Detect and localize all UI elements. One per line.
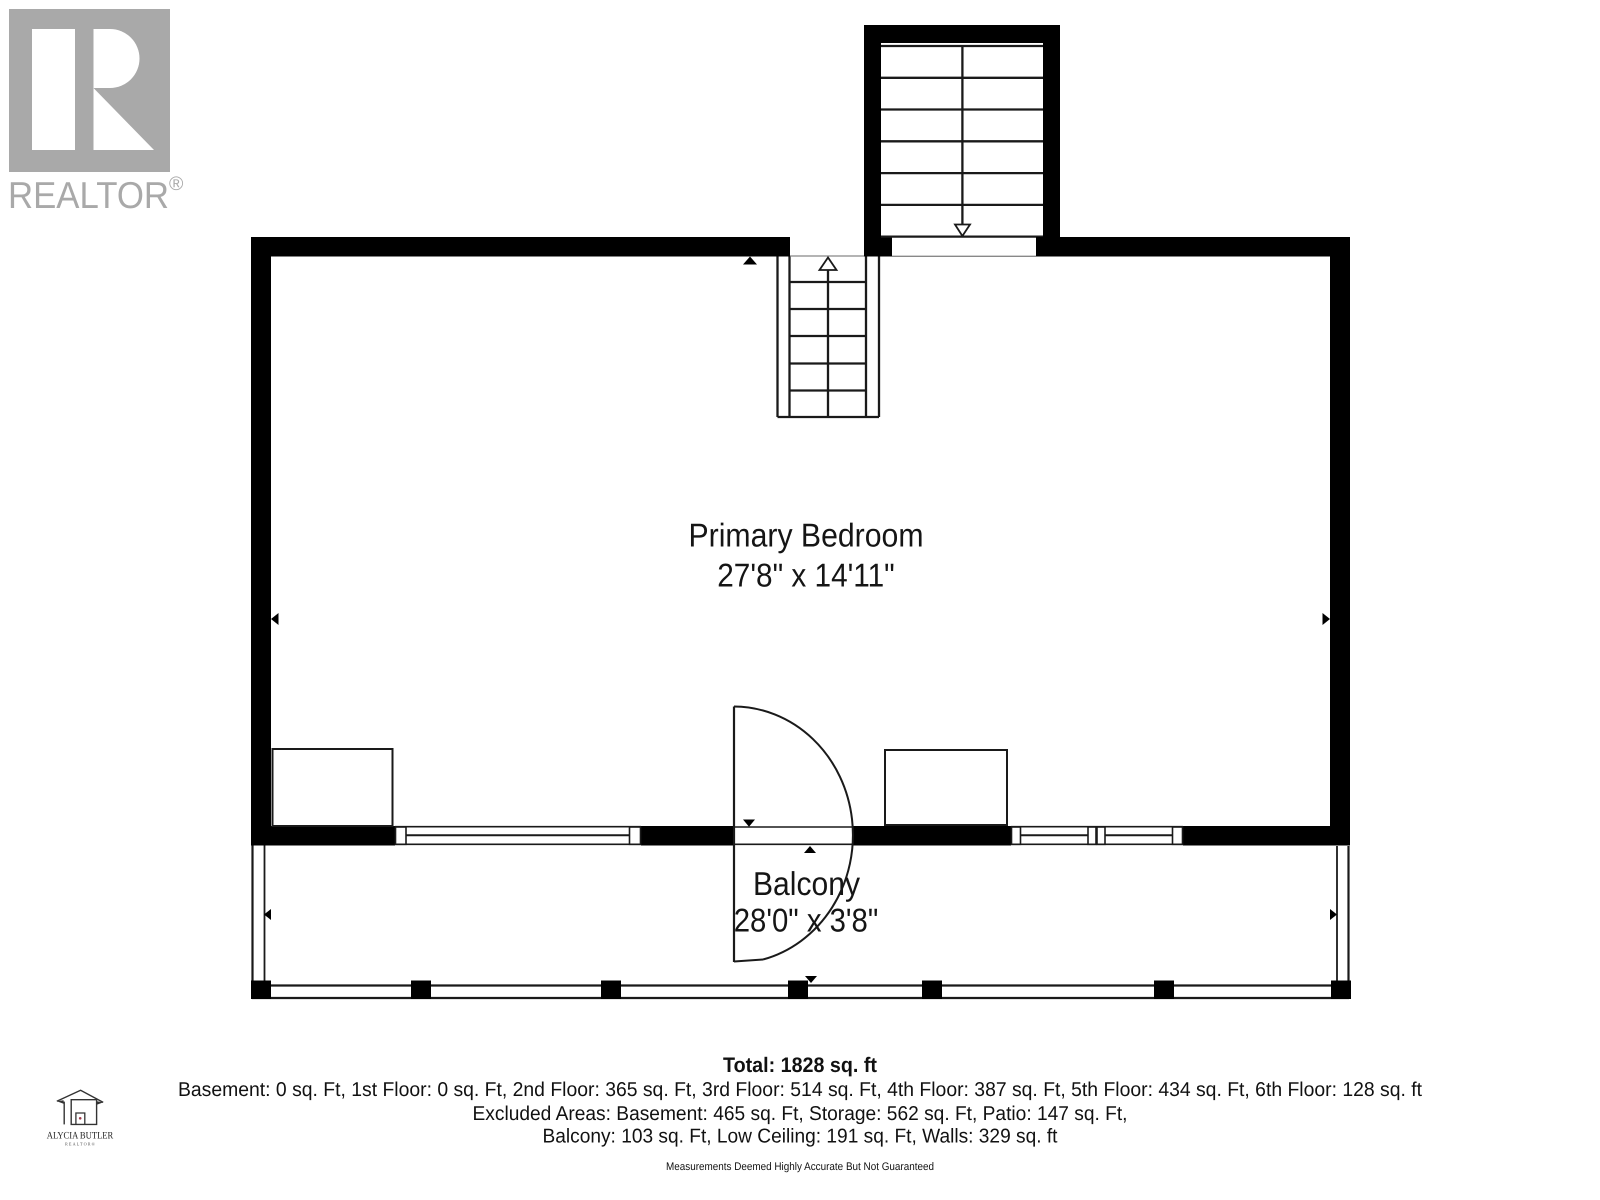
svg-text:®: ® <box>169 173 184 195</box>
svg-text:REALTOR®: REALTOR® <box>65 1142 96 1147</box>
svg-text:27'8" x 14'11": 27'8" x 14'11" <box>717 556 895 593</box>
svg-text:Total: 1828 sq. ft: Total: 1828 sq. ft <box>723 1054 877 1077</box>
svg-text:REALTOR: REALTOR <box>8 174 169 216</box>
svg-text:28'0" x 3'8": 28'0" x 3'8" <box>734 902 879 939</box>
svg-text:Balcony: Balcony <box>753 865 860 902</box>
svg-text:Excluded Areas: Basement: 465: Excluded Areas: Basement: 465 sq. Ft, St… <box>473 1103 1128 1125</box>
svg-text:Primary Bedroom: Primary Bedroom <box>689 517 924 554</box>
svg-text:Basement: 0 sq. Ft, 1st Floor:: Basement: 0 sq. Ft, 1st Floor: 0 sq. Ft,… <box>178 1079 1422 1101</box>
svg-text:Balcony: 103 sq. Ft, Low Ceili: Balcony: 103 sq. Ft, Low Ceiling: 191 sq… <box>543 1126 1058 1148</box>
svg-text:ALYCIA BUTLER: ALYCIA BUTLER <box>47 1131 114 1142</box>
svg-text:Measurements Deemed Highly Acc: Measurements Deemed Highly Accurate But … <box>666 1161 934 1173</box>
